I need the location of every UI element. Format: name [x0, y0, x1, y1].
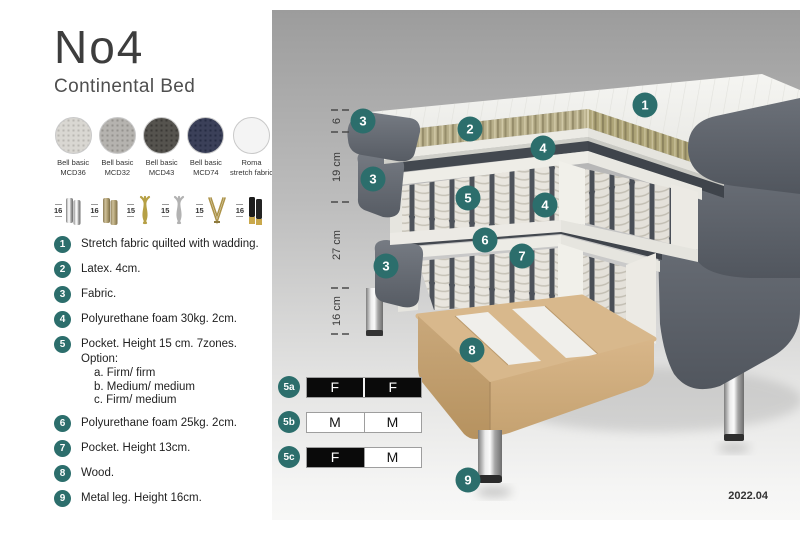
- legend-number-badge: 4: [54, 311, 71, 328]
- fabric-swatches: Bell basicMCD36 Bell basicMCD32 Bell bas…: [54, 117, 272, 178]
- legend-option: c. Firm/ medium: [94, 394, 272, 407]
- firmness-bar: M M: [306, 412, 422, 433]
- legend-item: 7 Pocket. Height 13cm.: [54, 441, 272, 457]
- legend-text: Pocket. Height 13cm.: [81, 441, 190, 455]
- svg-text:4: 4: [541, 198, 549, 213]
- svg-text:3: 3: [382, 259, 389, 274]
- legend-option: a. Firm/ firm: [94, 367, 272, 380]
- leg-hairpin-icon: [205, 194, 229, 226]
- firmness-badge: 5c: [278, 446, 300, 468]
- callout-8: 8: [460, 338, 485, 363]
- swatch-label-line1: Bell basic: [146, 158, 178, 167]
- fabric-swatch-icon: [233, 117, 270, 154]
- legend-text: Wood.: [81, 466, 114, 480]
- swatch-label-line1: Bell basic: [190, 158, 222, 167]
- callout-3-top: 3: [351, 109, 376, 134]
- callout-5: 5: [456, 186, 481, 211]
- svg-text:2: 2: [466, 122, 473, 137]
- leg-option: 15: [161, 194, 188, 226]
- firmness-row: 5a F F: [278, 376, 422, 398]
- firmness-row: 5b M M: [278, 411, 422, 433]
- legend-text: Polyurethane foam 30kg. 2cm.: [81, 312, 237, 326]
- fabric-swatch-icon: [187, 117, 224, 154]
- legend-number-badge: 3: [54, 286, 71, 303]
- legend-number-badge: 5: [54, 336, 71, 353]
- left-panel: No4 Continental Bed Bell basicMCD36 Bell…: [0, 0, 272, 533]
- bed-diagram-panel: 6 19 cm 27 cm 16 cm 1 2 3 4 3 5 4 6 7 3 …: [272, 10, 800, 520]
- swatch-label-line2: MCD36: [60, 168, 85, 177]
- firmness-options: 5a F F 5b M M 5c F M: [278, 376, 422, 468]
- swatch-label-line2: MCD43: [149, 168, 174, 177]
- svg-text:3: 3: [359, 114, 366, 129]
- dimension-label: 16 cm: [331, 296, 343, 326]
- spring-frame-post: [559, 161, 585, 225]
- callout-6: 6: [473, 228, 498, 253]
- legend-text: Stretch fabric quilted with wadding.: [81, 237, 259, 251]
- leg-option: 16: [54, 194, 83, 226]
- metal-leg-front: [478, 430, 502, 483]
- legend-options: a. Firm/ firm b. Medium/ medium c. Firm/…: [94, 367, 272, 407]
- svg-text:5: 5: [464, 191, 471, 206]
- svg-text:9: 9: [464, 473, 471, 488]
- leg-options: 16 16 15 15: [54, 186, 272, 226]
- leg-black-gold-icon: [245, 194, 265, 226]
- legend-text: Pocket. Height 15 cm. 7zones. Option:: [81, 337, 272, 366]
- callout-3-bottom: 3: [374, 254, 399, 279]
- legend-item: 2 Latex. 4cm.: [54, 262, 272, 278]
- swatch-label-line1: Bell basic: [101, 158, 133, 167]
- swatch-label-line1: Bell basic: [57, 158, 89, 167]
- callout-4-bottom: 4: [533, 193, 558, 218]
- legend-option: b. Medium/ medium: [94, 381, 272, 394]
- spring-frame-post: [558, 243, 583, 301]
- version-stamp: 2022.04: [728, 490, 768, 502]
- product-title: No4: [54, 24, 272, 71]
- legend-number-badge: 6: [54, 415, 71, 432]
- leg-cylinder-brass-icon: [100, 194, 120, 226]
- dimension-labels: 6 19 cm 27 cm 16 cm: [331, 118, 343, 326]
- callout-2: 2: [458, 117, 483, 142]
- callout-1: 1: [633, 93, 658, 118]
- firmness-badge: 5b: [278, 411, 300, 433]
- dimension-label: 19 cm: [331, 152, 343, 182]
- legend-text: Fabric.: [81, 287, 116, 301]
- product-subtitle: Continental Bed: [54, 76, 272, 98]
- svg-text:4: 4: [539, 141, 547, 156]
- callout-3-middle: 3: [361, 167, 386, 192]
- leg-height: 16: [236, 206, 244, 215]
- leg-cylinder-silver-icon: [63, 194, 83, 226]
- legend-text: Metal leg. Height 16cm.: [81, 491, 202, 505]
- swatch-label-line1: Roma: [241, 158, 261, 167]
- leg-height: 15: [195, 206, 203, 215]
- callout-4-top: 4: [531, 136, 556, 161]
- fabric-swatch: Bell basicMCD36: [54, 117, 92, 178]
- leg-height: 15: [161, 206, 169, 215]
- legend-item: 5 Pocket. Height 15 cm. 7zones. Option: …: [54, 337, 272, 407]
- fabric-swatch: Bell basicMCD43: [143, 117, 181, 178]
- leg-option: 16: [90, 194, 119, 226]
- legend-number-badge: 8: [54, 465, 71, 482]
- firmness-bar: F M: [306, 447, 422, 468]
- legend-item: 4 Polyurethane foam 30kg. 2cm.: [54, 312, 272, 328]
- legend-text: Polyurethane foam 25kg. 2cm.: [81, 416, 237, 430]
- leg-height: 16: [90, 206, 98, 215]
- swatch-label-line2: MCD74: [193, 168, 218, 177]
- firmness-cell: M: [364, 413, 422, 432]
- svg-text:7: 7: [518, 249, 525, 264]
- fabric-swatch: Bell basicMCD32: [98, 117, 136, 178]
- callout-9: 9: [456, 468, 481, 493]
- firmness-cell: M: [364, 448, 422, 467]
- legend-item: 8 Wood.: [54, 466, 272, 482]
- legend-item: 1 Stretch fabric quilted with wadding.: [54, 237, 272, 253]
- legend-number-badge: 9: [54, 490, 71, 507]
- svg-text:6: 6: [481, 233, 488, 248]
- callout-7: 7: [510, 244, 535, 269]
- fabric-swatch-icon: [143, 117, 180, 154]
- swatch-label-line2: MCD32: [105, 168, 130, 177]
- leg-height: 16: [54, 206, 62, 215]
- legend-item: 6 Polyurethane foam 25kg. 2cm.: [54, 416, 272, 432]
- firmness-badge: 5a: [278, 376, 300, 398]
- firmness-bar: F F: [306, 377, 422, 398]
- firmness-row: 5c F M: [278, 446, 422, 468]
- firmness-cell: M: [307, 413, 364, 432]
- spring-frame-post: [671, 184, 698, 250]
- leg-height: 15: [127, 206, 135, 215]
- fabric-swatch: Bell basicMCD74: [187, 117, 225, 178]
- fabric-swatch-icon: [55, 117, 92, 154]
- firmness-cell: F: [363, 378, 421, 397]
- legend-item: 3 Fabric.: [54, 287, 272, 303]
- legend-number-badge: 1: [54, 236, 71, 253]
- svg-text:8: 8: [468, 343, 475, 358]
- leg-option: 15: [127, 194, 154, 226]
- legend-number-badge: 2: [54, 261, 71, 278]
- firmness-cell: F: [307, 448, 364, 467]
- legend-item: 9 Metal leg. Height 16cm.: [54, 491, 272, 507]
- swatch-label-line2: stretch fabric: [230, 168, 273, 177]
- leg-option: 16: [236, 194, 265, 226]
- leg-twist-gold-icon: [136, 194, 154, 226]
- fabric-swatch-icon: [99, 117, 136, 154]
- dimension-label: 27 cm: [331, 230, 343, 260]
- svg-text:3: 3: [369, 172, 376, 187]
- legend: 1 Stretch fabric quilted with wadding. 2…: [54, 237, 272, 507]
- leg-option: 15: [195, 194, 228, 226]
- fabric-swatch: Romastretch fabric: [231, 117, 272, 178]
- legend-text: Latex. 4cm.: [81, 262, 140, 276]
- svg-text:1: 1: [641, 98, 648, 113]
- product-sheet: No4 Continental Bed Bell basicMCD36 Bell…: [0, 0, 800, 533]
- legend-number-badge: 7: [54, 440, 71, 457]
- dimension-label: 6: [331, 118, 343, 124]
- firmness-cell: F: [307, 378, 363, 397]
- leg-twist-silver-icon: [170, 194, 188, 226]
